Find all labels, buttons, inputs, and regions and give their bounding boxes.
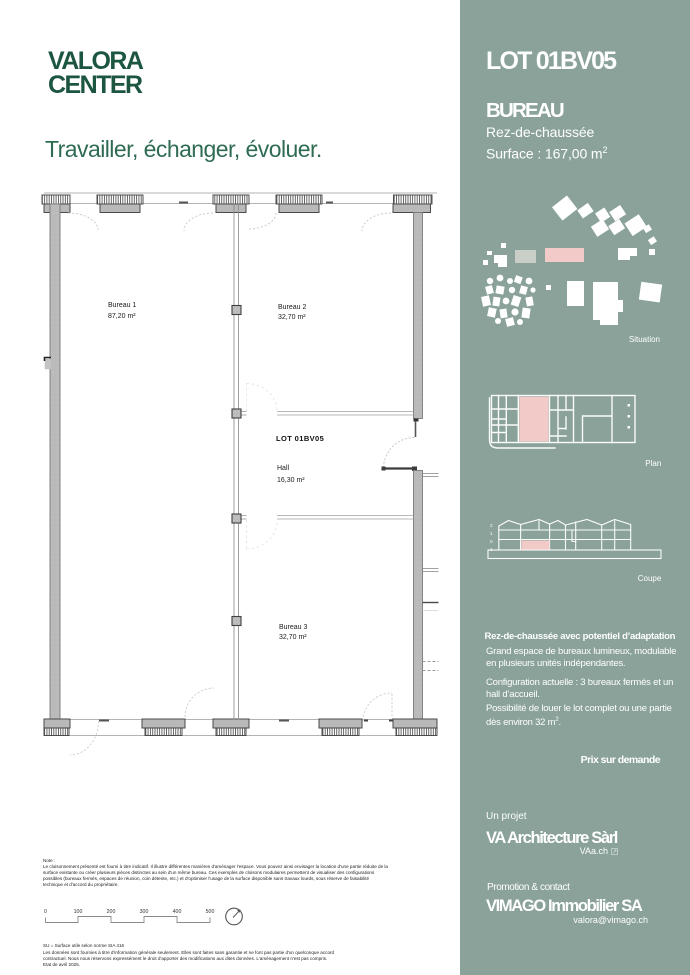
svg-text:Plan: Plan <box>645 459 661 468</box>
svg-text:2: 2 <box>490 523 493 528</box>
svg-text:Hall: Hall <box>277 465 290 472</box>
svg-text:Bureau 1: Bureau 1 <box>108 302 137 309</box>
svg-text:LOT 01BV05: LOT 01BV05 <box>276 434 324 443</box>
svg-text:400: 400 <box>173 909 182 915</box>
svg-text:0: 0 <box>44 909 47 915</box>
svg-text:500: 500 <box>206 909 215 915</box>
svg-text:Situation: Situation <box>629 335 660 344</box>
svg-text:100: 100 <box>74 909 83 915</box>
svg-text:200: 200 <box>107 909 116 915</box>
svg-text:Bureau 3: Bureau 3 <box>279 624 308 631</box>
svg-text:-1: -1 <box>489 547 494 552</box>
svg-text:32,70 m²: 32,70 m² <box>279 634 307 641</box>
svg-text:300: 300 <box>140 909 149 915</box>
svg-text:1: 1 <box>490 531 493 536</box>
svg-text:87,20 m²: 87,20 m² <box>108 313 136 320</box>
svg-text:Bureau 2: Bureau 2 <box>278 304 307 311</box>
svg-text:32,70 m²: 32,70 m² <box>278 314 306 321</box>
svg-text:Coupe: Coupe <box>638 574 662 583</box>
svg-text:16,30 m²: 16,30 m² <box>277 477 305 484</box>
svg-text:0: 0 <box>490 539 493 544</box>
